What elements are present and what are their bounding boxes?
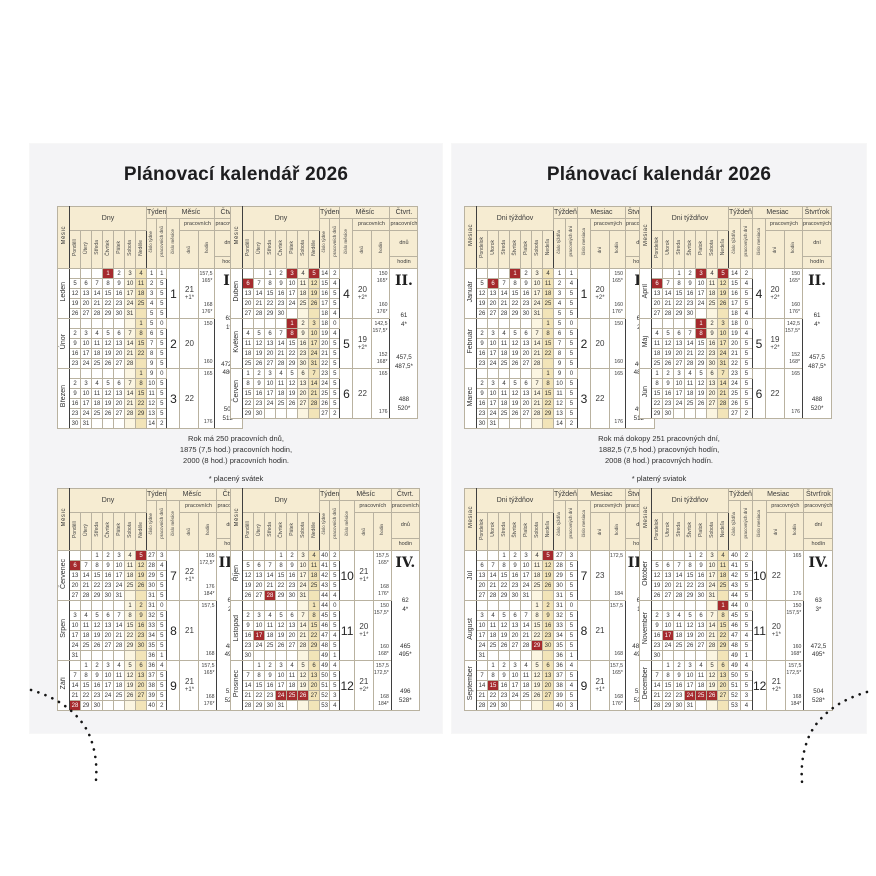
day-cell: 13	[298, 379, 309, 389]
day-cell: 21	[125, 399, 136, 409]
week-number-cell: 28	[554, 561, 566, 571]
week-workdays-cell: 2	[565, 419, 577, 429]
day-cell: 17	[685, 681, 696, 691]
day-name-header: Čtvrtek	[103, 513, 114, 551]
hours-75-group: 157,5	[610, 603, 623, 610]
day-cell: 21	[707, 631, 718, 641]
day-cell	[265, 651, 276, 661]
month-working-header: pracovních	[354, 501, 391, 513]
day-cell: 24	[510, 691, 521, 701]
day-cell	[477, 319, 488, 329]
hours-8-group: 160	[204, 359, 213, 366]
holiday-day-cell: 1	[718, 601, 729, 611]
days-group-header: Dny	[70, 489, 147, 513]
day-cell	[114, 419, 125, 429]
table-body: Júl12345273723172,5184III.651*487,5495*5…	[465, 551, 655, 711]
day-cell	[265, 409, 276, 419]
day-cell	[652, 601, 663, 611]
day-cell	[543, 651, 554, 661]
day-name-header: Utorok	[663, 231, 674, 269]
day-name-header: Neděle	[136, 513, 147, 551]
month-column-label: Mesiac	[468, 506, 474, 528]
day-cell: 31	[70, 651, 81, 661]
month-name-text: Červenec	[60, 559, 67, 589]
day-cell: 20	[265, 349, 276, 359]
day-cell: 23	[652, 641, 663, 651]
day-cell	[499, 651, 510, 661]
week-workdays-cell: 2	[740, 551, 752, 561]
day-name-label: Sobota	[301, 240, 306, 256]
week-workdays-cell: 4	[157, 661, 167, 671]
day-cell: 7	[265, 561, 276, 571]
week-workdays-cell: 5	[157, 681, 167, 691]
month-hours-values: 165172,5*176184*	[199, 552, 216, 599]
week-workdays-cell: 5	[565, 641, 577, 651]
week-number-cell: 9	[147, 369, 157, 379]
day-cell: 25	[543, 299, 554, 309]
day-cell: 29	[718, 641, 729, 651]
table-header: MěsícDnyTýdenMěsícČtvrt.číslo týdnepraco…	[58, 489, 245, 551]
day-cell: 8	[663, 671, 674, 681]
day-cell	[532, 651, 543, 661]
day-name-header: Utorok	[663, 513, 674, 551]
day-cell	[696, 601, 707, 611]
week-workdays-cell: 2	[157, 419, 167, 429]
week-number-cell: 38	[554, 681, 566, 691]
day-cell: 27	[114, 359, 125, 369]
day-name-header: Sobota	[125, 231, 136, 269]
week-workdays-cell: 3	[565, 701, 577, 711]
day-name-label: Štvrtok	[688, 240, 693, 256]
day-cell: 29	[696, 359, 707, 369]
week-number-cell: 33	[147, 621, 157, 631]
paid-holiday-footnote: * platený sviatok	[452, 474, 866, 483]
week-workdays-cell: 5	[740, 671, 752, 681]
days-group-header: Dny	[70, 207, 147, 231]
day-cell: 24	[707, 581, 718, 591]
week-number-cell: 37	[554, 671, 566, 681]
day-name-header: Čtvrtek	[276, 513, 287, 551]
day-name-label: Pondelok	[480, 519, 485, 540]
day-cell: 7	[70, 671, 81, 681]
week-number-label: číslo týdne	[322, 231, 327, 253]
day-cell	[309, 591, 320, 601]
month-column-label: Mesiac	[643, 506, 649, 528]
month-days-unit-label: dnů	[362, 528, 367, 536]
day-cell: 23	[298, 349, 309, 359]
day-cell: 17	[718, 339, 729, 349]
week-number-cell: 44	[729, 601, 741, 611]
week-workdays-label: pracovných dní	[569, 508, 574, 539]
day-cell: 25	[718, 581, 729, 591]
day-cell: 28	[298, 641, 309, 651]
day-cell: 6	[521, 329, 532, 339]
day-cell: 5	[276, 611, 287, 621]
week-number-cell: 47	[729, 631, 741, 641]
month-workdays-cell: 21	[590, 601, 609, 661]
day-cell: 15	[136, 339, 147, 349]
day-name-label: Čtvrtek	[106, 240, 111, 256]
day-cell: 7	[521, 611, 532, 621]
month-name-text: Únor	[60, 334, 67, 349]
week-number-cell: 49	[320, 651, 330, 661]
week-number-cell: 6	[147, 329, 157, 339]
holiday-day-cell: 26	[707, 691, 718, 701]
week-number-cell: 5	[554, 319, 566, 329]
day-cell: 7	[652, 671, 663, 681]
month-column-label: Měsíc	[234, 508, 240, 527]
day-name-header: Pondělí	[70, 231, 81, 269]
day-cell	[136, 591, 147, 601]
day-cell	[276, 319, 287, 329]
day-cell: 10	[70, 621, 81, 631]
day-cell: 13	[477, 571, 488, 581]
quarter-summary-values: IV.633*472,5495*504528*	[804, 553, 832, 709]
day-cell: 16	[477, 399, 488, 409]
month-hours-cell: 157,5168	[609, 601, 625, 661]
day-cell: 8	[103, 279, 114, 289]
month-paid-holidays-value: +2*	[353, 295, 371, 301]
holiday-day-cell: 8	[696, 329, 707, 339]
day-cell	[488, 601, 499, 611]
day-name-header: Sobota	[532, 231, 543, 269]
month-number-cell: 11	[340, 601, 354, 661]
day-cell	[254, 551, 265, 561]
day-cell: 30	[477, 419, 488, 429]
day-name-label: Čtvrtek	[106, 522, 111, 538]
day-cell: 20	[488, 299, 499, 309]
day-name-header: Pondelok	[477, 231, 488, 269]
day-cell	[488, 551, 499, 561]
day-name-label: Utorok	[491, 522, 496, 537]
day-cell: 17	[309, 339, 320, 349]
day-cell: 31	[707, 591, 718, 601]
day-cell: 20	[674, 349, 685, 359]
day-cell: 10	[276, 671, 287, 681]
day-cell: 11	[707, 279, 718, 289]
day-cell	[543, 701, 554, 711]
month-days-unit-label: dnů	[187, 528, 192, 536]
day-name-header: Pátek	[114, 231, 125, 269]
day-cell: 22	[92, 581, 103, 591]
week-workdays-cell: 5	[157, 349, 167, 359]
table-body: Apríl12345142420+2*150165*160176*II.614*…	[640, 269, 832, 419]
week-workdays-cell: 1	[565, 651, 577, 661]
month-hours-cell: 157,5165*168176*	[609, 661, 625, 711]
day-cell	[114, 369, 125, 379]
day-cell: 11	[652, 339, 663, 349]
month-number-cell: 12	[752, 661, 766, 711]
week-workdays-label: pracovných dní	[569, 226, 574, 257]
day-cell	[663, 319, 674, 329]
month-hours-cell: 165176	[199, 369, 215, 429]
quarter-working-header: pracovných	[804, 501, 833, 513]
day-cell: 31	[521, 591, 532, 601]
day-cell: 11	[696, 671, 707, 681]
week-number-cell: 14	[147, 419, 157, 429]
week-number-label: číslo týždňa	[557, 512, 562, 536]
month-number-cell: 6	[340, 369, 353, 419]
day-cell	[92, 369, 103, 379]
day-cell: 10	[510, 671, 521, 681]
day-cell	[298, 651, 309, 661]
month-workdays-value: 22	[353, 390, 371, 398]
day-name-label: Streda	[677, 522, 682, 537]
day-name-header: Utorok	[488, 513, 499, 551]
day-cell	[685, 601, 696, 611]
day-cell: 16	[103, 571, 114, 581]
day-cell: 12	[243, 571, 254, 581]
day-cell: 28	[276, 359, 287, 369]
day-cell	[298, 701, 309, 711]
month-name-label: Apríl	[640, 269, 652, 319]
quarter-roman-numeral: II.	[808, 274, 826, 288]
day-cell: 19	[254, 349, 265, 359]
day-cell: 6	[521, 379, 532, 389]
week-workdays-header: pracovních dnů	[330, 501, 340, 551]
day-cell: 8	[543, 329, 554, 339]
day-cell: 12	[309, 279, 320, 289]
week-number-cell: 9	[554, 369, 566, 379]
quarter-group-header: Čtvrt.	[391, 489, 419, 501]
day-cell: 23	[103, 581, 114, 591]
day-cell: 20	[243, 299, 254, 309]
week-workdays-cell: 4	[740, 279, 752, 289]
day-cell: 16	[114, 289, 125, 299]
day-cell: 18	[309, 571, 320, 581]
week-number-cell: 51	[729, 681, 741, 691]
month-hours-cell: 150165*160176*	[784, 269, 802, 319]
day-cell: 28	[521, 641, 532, 651]
week-workdays-cell: 5	[740, 389, 752, 399]
month-name-text: Marec	[467, 387, 474, 406]
day-cell: 3	[309, 319, 320, 329]
day-cell: 10	[81, 389, 92, 399]
day-cell: 19	[499, 631, 510, 641]
day-name-header: Streda	[674, 513, 685, 551]
week-workdays-cell: 4	[740, 701, 752, 711]
week-row: Listopad14401120+1*150157,5*160168*	[231, 601, 420, 611]
day-cell	[81, 601, 92, 611]
day-cell: 22	[125, 631, 136, 641]
day-cell: 8	[543, 379, 554, 389]
day-cell: 14	[477, 681, 488, 691]
day-cell: 29	[136, 409, 147, 419]
day-name-header: Sobota	[125, 513, 136, 551]
day-cell: 31	[309, 359, 320, 369]
week-number-cell: 6	[554, 329, 566, 339]
month-number-label: číslo mesiaca	[757, 228, 762, 255]
week-number-cell: 32	[147, 611, 157, 621]
day-cell: 11	[499, 339, 510, 349]
day-cell: 28	[532, 359, 543, 369]
day-cell	[477, 601, 488, 611]
day-cell: 8	[532, 611, 543, 621]
day-cell: 11	[499, 389, 510, 399]
week-number-header: číslo týždňa	[729, 501, 741, 551]
hours-8-group: 152168*	[789, 352, 800, 366]
day-cell: 8	[254, 671, 265, 681]
day-cell: 20	[81, 299, 92, 309]
day-cell	[685, 319, 696, 329]
hours-8-group: 168	[614, 651, 623, 658]
holiday-day-cell: 5	[543, 551, 554, 561]
day-cell: 17	[265, 389, 276, 399]
day-cell: 7	[276, 329, 287, 339]
day-cell: 21	[92, 299, 103, 309]
day-cell: 21	[652, 691, 663, 701]
day-cell: 15	[674, 289, 685, 299]
day-cell: 9	[136, 611, 147, 621]
month-workdays-cell: 22	[767, 551, 786, 601]
week-workdays-cell: 5	[330, 339, 340, 349]
day-cell: 5	[243, 561, 254, 571]
calendar-page-left: Plánovací kalendář 2026 MěsícDnyTýdenMěs…	[30, 144, 442, 733]
hours-8-group: 168176*	[612, 694, 623, 708]
day-cell: 24	[477, 641, 488, 651]
day-cell: 2	[114, 269, 125, 279]
week-workdays-label: pracovných dní	[744, 226, 749, 257]
day-name-label: Sobota	[128, 522, 133, 538]
week-workdays-cell: 4	[330, 631, 340, 641]
week-number-cell: 18	[320, 319, 330, 329]
day-cell: 4	[92, 379, 103, 389]
day-cell: 30	[298, 359, 309, 369]
day-name-header: Piatok	[696, 513, 707, 551]
month-workdays-cell: 21+1*	[180, 661, 199, 711]
day-cell: 25	[81, 641, 92, 651]
week-number-cell: 53	[729, 701, 741, 711]
week-number-cell: 14	[320, 269, 330, 279]
day-cell	[532, 591, 543, 601]
day-cell: 6	[287, 611, 298, 621]
page-title: Plánovací kalendář 2026	[30, 164, 442, 186]
month-paid-holidays-value: +2*	[766, 345, 784, 351]
day-cell	[136, 701, 147, 711]
day-cell: 30	[707, 359, 718, 369]
week-number-cell: 3	[147, 289, 157, 299]
day-cell: 3	[521, 551, 532, 561]
week-workdays-cell: 5	[740, 641, 752, 651]
day-cell: 17	[477, 631, 488, 641]
month-hours-unit-header: hodin	[372, 231, 390, 269]
day-cell: 10	[298, 561, 309, 571]
day-cell: 30	[287, 591, 298, 601]
day-cell: 9	[103, 561, 114, 571]
month-hours-unit-label: hodin	[380, 524, 385, 535]
day-cell: 29	[663, 701, 674, 711]
day-cell: 11	[276, 379, 287, 389]
table-header: MesiacDni týždňovTýždeňMesiacŠtvrťrokčís…	[465, 489, 655, 551]
day-cell: 23	[287, 581, 298, 591]
day-name-label: Sobota	[128, 240, 133, 256]
day-cell: 14	[254, 289, 265, 299]
day-cell: 19	[510, 349, 521, 359]
day-cell: 16	[136, 621, 147, 631]
month-number-cell: 6	[752, 369, 765, 419]
month-hours-cell: 165172,5*176184*	[199, 551, 217, 601]
day-cell: 27	[309, 691, 320, 701]
day-cell	[674, 319, 685, 329]
day-cell: 7	[532, 329, 543, 339]
summary-line: 2000 (8 hod.) pracovních hodin.	[30, 456, 442, 467]
month-name-label: Január	[465, 269, 477, 319]
quarter-hours-75-group: 457,5487,5*	[808, 354, 826, 371]
quarter-table: MěsícDnyTýdenMěsícČtvrt.číslo týdnepraco…	[230, 206, 418, 419]
day-cell: 12	[510, 339, 521, 349]
day-cell: 23	[114, 299, 125, 309]
month-number-label: číslo měsíce	[171, 511, 176, 536]
day-cell: 15	[532, 621, 543, 631]
week-workdays-label: pracovních dnů	[160, 508, 165, 539]
day-cell: 30	[254, 409, 265, 419]
day-cell: 26	[103, 359, 114, 369]
day-cell: 25	[499, 409, 510, 419]
week-number-label: číslo týždňa	[732, 512, 737, 536]
month-workdays-value: 21	[180, 286, 198, 294]
day-cell: 29	[543, 409, 554, 419]
month-name-text: Září	[60, 677, 67, 689]
day-cell: 12	[70, 289, 81, 299]
day-cell: 6	[114, 329, 125, 339]
month-days-unit-label: dnů	[360, 246, 365, 254]
day-cell: 22	[136, 349, 147, 359]
day-cell: 15	[125, 621, 136, 631]
table-header: MěsícDnyTýdenMěsícČtvrt.číslo týdnepraco…	[231, 207, 418, 269]
month-workdays-value: 20	[591, 340, 609, 348]
week-workdays-cell: 5	[565, 379, 577, 389]
day-cell: 7	[477, 671, 488, 681]
day-cell: 2	[543, 601, 554, 611]
holiday-day-cell: 5	[309, 269, 320, 279]
day-cell: 25	[92, 359, 103, 369]
day-cell	[276, 601, 287, 611]
week-number-cell: 19	[729, 329, 741, 339]
week-workdays-cell: 3	[740, 691, 752, 701]
week-number-cell: 24	[320, 379, 330, 389]
day-cell	[477, 551, 488, 561]
quarter-hours-75-group: 457,5487,5*	[395, 354, 413, 371]
day-cell	[276, 651, 287, 661]
hours-8-group: 168184*	[791, 694, 802, 708]
quarter-days-group: 614*	[400, 312, 407, 329]
day-cell: 29	[92, 591, 103, 601]
week-number-cell: 49	[729, 661, 741, 671]
week-workdays-cell: 0	[565, 601, 577, 611]
week-workdays-cell: 2	[157, 701, 167, 711]
day-name-header: Piatok	[521, 231, 532, 269]
week-number-cell: 42	[729, 571, 741, 581]
day-cell	[718, 591, 729, 601]
day-name-header: Neděle	[309, 231, 320, 269]
month-hours-values: 142,5157,5*152168*	[372, 320, 389, 367]
week-workdays-cell: 5	[330, 289, 340, 299]
day-cell: 4	[718, 551, 729, 561]
week-number-cell: 7	[554, 339, 566, 349]
week-workdays-cell: 5	[157, 309, 167, 319]
month-days-unit-header: dnů	[354, 513, 373, 551]
week-number-cell: 52	[320, 691, 330, 701]
month-name-label: Květen	[231, 319, 243, 369]
day-cell: 5	[287, 369, 298, 379]
hours-75-group: 150	[204, 321, 213, 328]
month-workdays-cell: 21+2*	[767, 661, 786, 711]
day-cell: 24	[663, 641, 674, 651]
day-name-label: Nedeľa	[546, 239, 551, 255]
day-cell	[92, 319, 103, 329]
day-cell	[70, 269, 81, 279]
month-workdays-value: 19	[766, 336, 784, 344]
